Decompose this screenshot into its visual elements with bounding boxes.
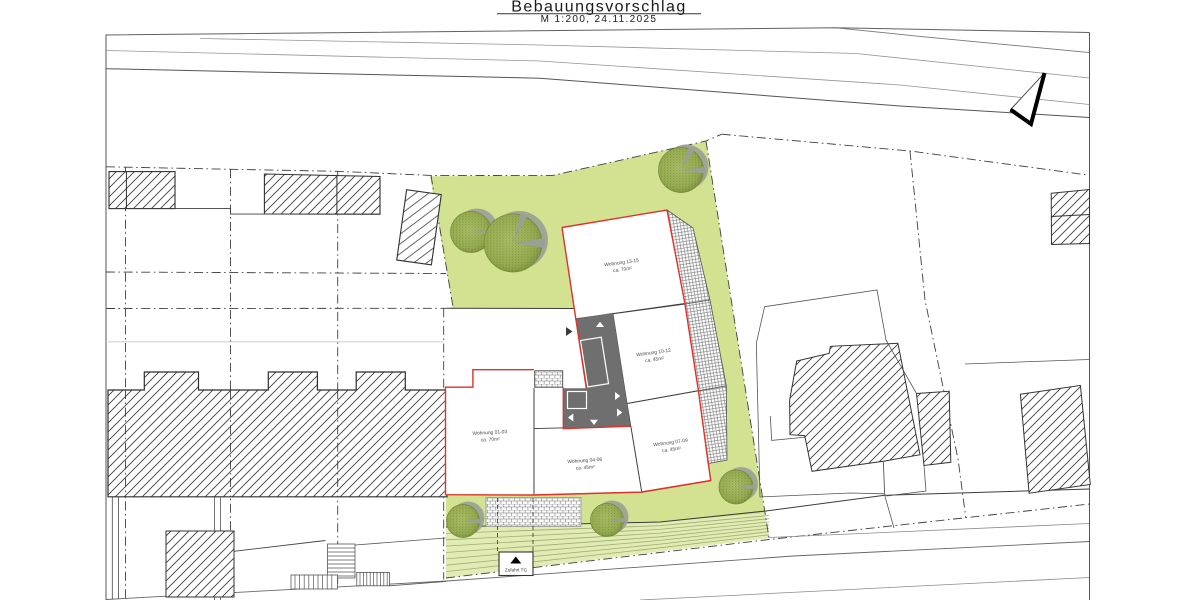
svg-text:M 1:200, 24.11.2025: M 1:200, 24.11.2025 [541,14,658,25]
svg-text:Zufahrt TG: Zufahrt TG [505,568,528,573]
svg-text:ca. 70m²: ca. 70m² [481,436,501,443]
